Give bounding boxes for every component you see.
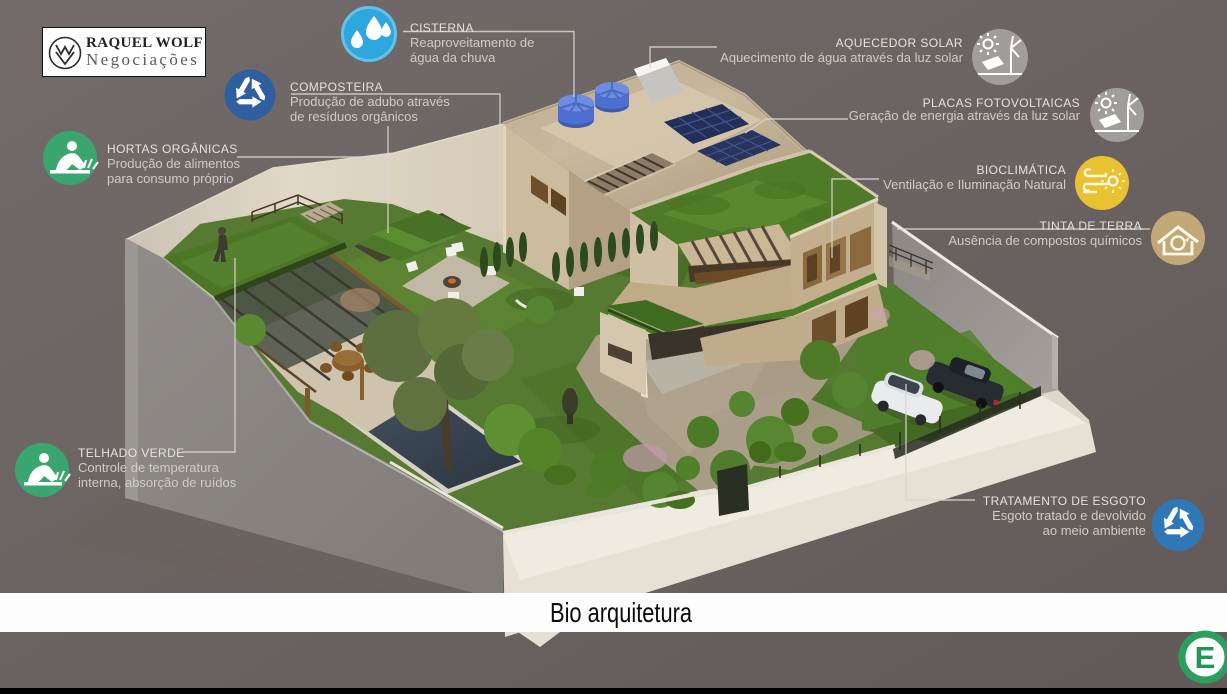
svg-text:E: E bbox=[1195, 640, 1216, 675]
